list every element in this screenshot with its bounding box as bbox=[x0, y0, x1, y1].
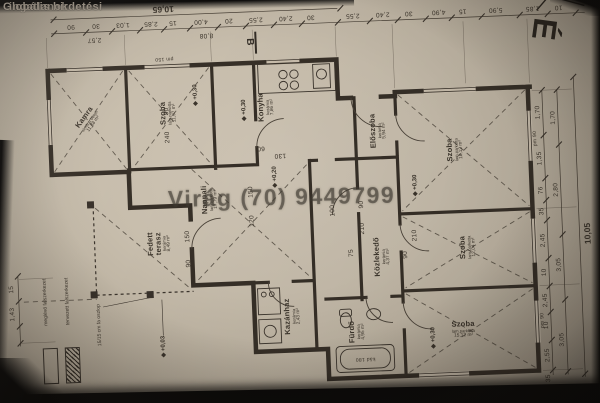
dim-label: 10 bbox=[554, 3, 562, 10]
dim-label: pm 90 bbox=[540, 313, 546, 329]
dim-label: 1,70 bbox=[535, 105, 542, 119]
watermark-phone: Virág (70) 9449799 bbox=[168, 182, 396, 213]
dim-label: 30 bbox=[92, 22, 100, 29]
watermark-site-line2: ingatlanok bbox=[9, 1, 68, 13]
door-arcs bbox=[186, 95, 432, 338]
stove-icon bbox=[279, 70, 299, 90]
outer-walls bbox=[48, 52, 541, 390]
dim-label: 60 bbox=[257, 144, 265, 151]
dim-label: 75 bbox=[349, 249, 356, 257]
level-diamond-icon: ◆ bbox=[193, 101, 199, 106]
dim-label: 90 bbox=[186, 259, 193, 267]
dim-label: 1,85 bbox=[525, 4, 539, 11]
dim-label: 3,05 bbox=[559, 333, 566, 347]
windows bbox=[45, 49, 542, 393]
interior-walls bbox=[125, 52, 539, 387]
dim-label: 2,57 bbox=[87, 36, 101, 43]
level-marker: ◆ +0,30 bbox=[430, 327, 437, 349]
dim-label: 3,05 bbox=[556, 258, 563, 272]
dim-label: 15 bbox=[169, 19, 177, 26]
boiler-icon bbox=[259, 319, 282, 344]
level-marker: ◆ +0,30 bbox=[241, 99, 248, 121]
dim-label: kád 180 bbox=[355, 356, 375, 362]
dim-label: 90 bbox=[67, 23, 75, 30]
dim-label: 2,40 bbox=[279, 14, 293, 21]
room-label-furdo: Fürdő kerámia 4,95 m² bbox=[348, 320, 367, 343]
dim-label: 30 bbox=[307, 13, 315, 20]
level-marker: ◆ +0,30 bbox=[412, 174, 419, 196]
dim-label: 2,55 bbox=[346, 11, 360, 18]
dim-label: 8,08 bbox=[199, 31, 213, 38]
dim-label: 210 bbox=[412, 229, 419, 241]
level-diamond-icon: ◆ bbox=[431, 344, 437, 349]
dim-label: 10,65 bbox=[152, 5, 174, 14]
washbasin-icon bbox=[366, 308, 380, 320]
dim-label: 1,03 bbox=[116, 20, 130, 27]
dim-label: 10,05 bbox=[583, 223, 592, 245]
dim-label: 2,45 bbox=[540, 233, 547, 247]
dim-label: 15 bbox=[9, 286, 16, 294]
dim-label: 10 bbox=[542, 268, 549, 276]
dim-label: 2,55 bbox=[545, 348, 552, 362]
level-marker: ◆ +0,03 bbox=[160, 336, 167, 358]
dim-label: 240 bbox=[165, 131, 172, 143]
washing-machine-icon bbox=[258, 288, 281, 315]
dim-label: 35 bbox=[577, 0, 585, 1]
dim-label: 76 bbox=[538, 186, 545, 194]
room-label-kozlekedo: Közlekedő kerámia 4,37 m² bbox=[372, 237, 392, 277]
leader-lines bbox=[103, 297, 164, 338]
dim-label: 35 bbox=[539, 207, 546, 215]
dim-label: pm 90 bbox=[533, 131, 539, 147]
level-diamond-icon: ◆ bbox=[242, 116, 248, 121]
dim-label: 150 bbox=[185, 231, 192, 243]
level-diamond-icon: ◆ bbox=[161, 353, 167, 358]
dim-label: 2,85 bbox=[144, 19, 158, 26]
legend-swatch-existing-wall bbox=[43, 348, 59, 385]
dim-label: 30 bbox=[405, 9, 413, 16]
section-line bbox=[255, 32, 256, 54]
dim-label: 15 bbox=[458, 7, 466, 14]
level-marker: ◆ +0,30 bbox=[192, 84, 199, 106]
dim-label: 1,70 bbox=[550, 111, 557, 125]
legend-swatch-planned-wall bbox=[65, 347, 81, 384]
room-label-szoba-left: Szoba lam.parketta 11,97 m² bbox=[159, 101, 178, 125]
dim-label: 1,43 bbox=[10, 308, 17, 322]
dim-label: 2,80 bbox=[553, 183, 560, 197]
floorplan-drawing-area: 10,65 90 30 1,03 2,85 15 4,00 20 2,55 2,… bbox=[0, 0, 600, 403]
dim-label: 4,00 bbox=[194, 17, 208, 24]
room-label-szoba-top-right: Szoba lam.parketta 18,12 m² bbox=[445, 138, 464, 162]
floorplan-photo: 10,65 90 30 1,03 2,85 15 4,00 20 2,55 2,… bbox=[0, 0, 600, 403]
dim-label: 2,45 bbox=[543, 293, 550, 307]
dim-label: 1,35 bbox=[537, 151, 544, 165]
dim-label: 5,90 bbox=[488, 5, 502, 12]
dim-label: 2,40 bbox=[376, 10, 390, 17]
dim-label: 20 bbox=[225, 16, 233, 23]
room-label-terasz: Fedett terasz kerámia 8,49 m² bbox=[146, 228, 173, 259]
dim-label: 210 bbox=[360, 222, 367, 234]
dim-label: 2,55 bbox=[249, 15, 263, 22]
dim-label: 4,90 bbox=[431, 8, 445, 15]
room-label-konyha: Konyha kerámia 7,86 m² bbox=[256, 93, 276, 122]
level-diamond-icon: ◆ bbox=[413, 191, 419, 196]
dim-label: 130 bbox=[274, 151, 286, 158]
dim-label: pm 150 bbox=[155, 55, 174, 61]
room-label-szoba-bottom-right: Szoba lam.parketta 15,12 m² bbox=[451, 320, 475, 339]
dim-label: 90 bbox=[403, 251, 410, 259]
kitchen-sink bbox=[313, 64, 331, 89]
room-label-szoba-mid-right: Szoba lam.parketta 12,04 m² bbox=[458, 235, 477, 259]
dim-label: 35 bbox=[546, 374, 553, 382]
terrace-open-edge bbox=[93, 201, 194, 295]
section-marker: B bbox=[244, 38, 255, 46]
room-label-eloszoba: Előszoba kerámia 5,94 m² bbox=[368, 113, 388, 148]
room-label-kazanhaz: Kazánház kerámia 2,43 m² bbox=[283, 298, 303, 335]
dim-label: 120 bbox=[249, 215, 256, 227]
